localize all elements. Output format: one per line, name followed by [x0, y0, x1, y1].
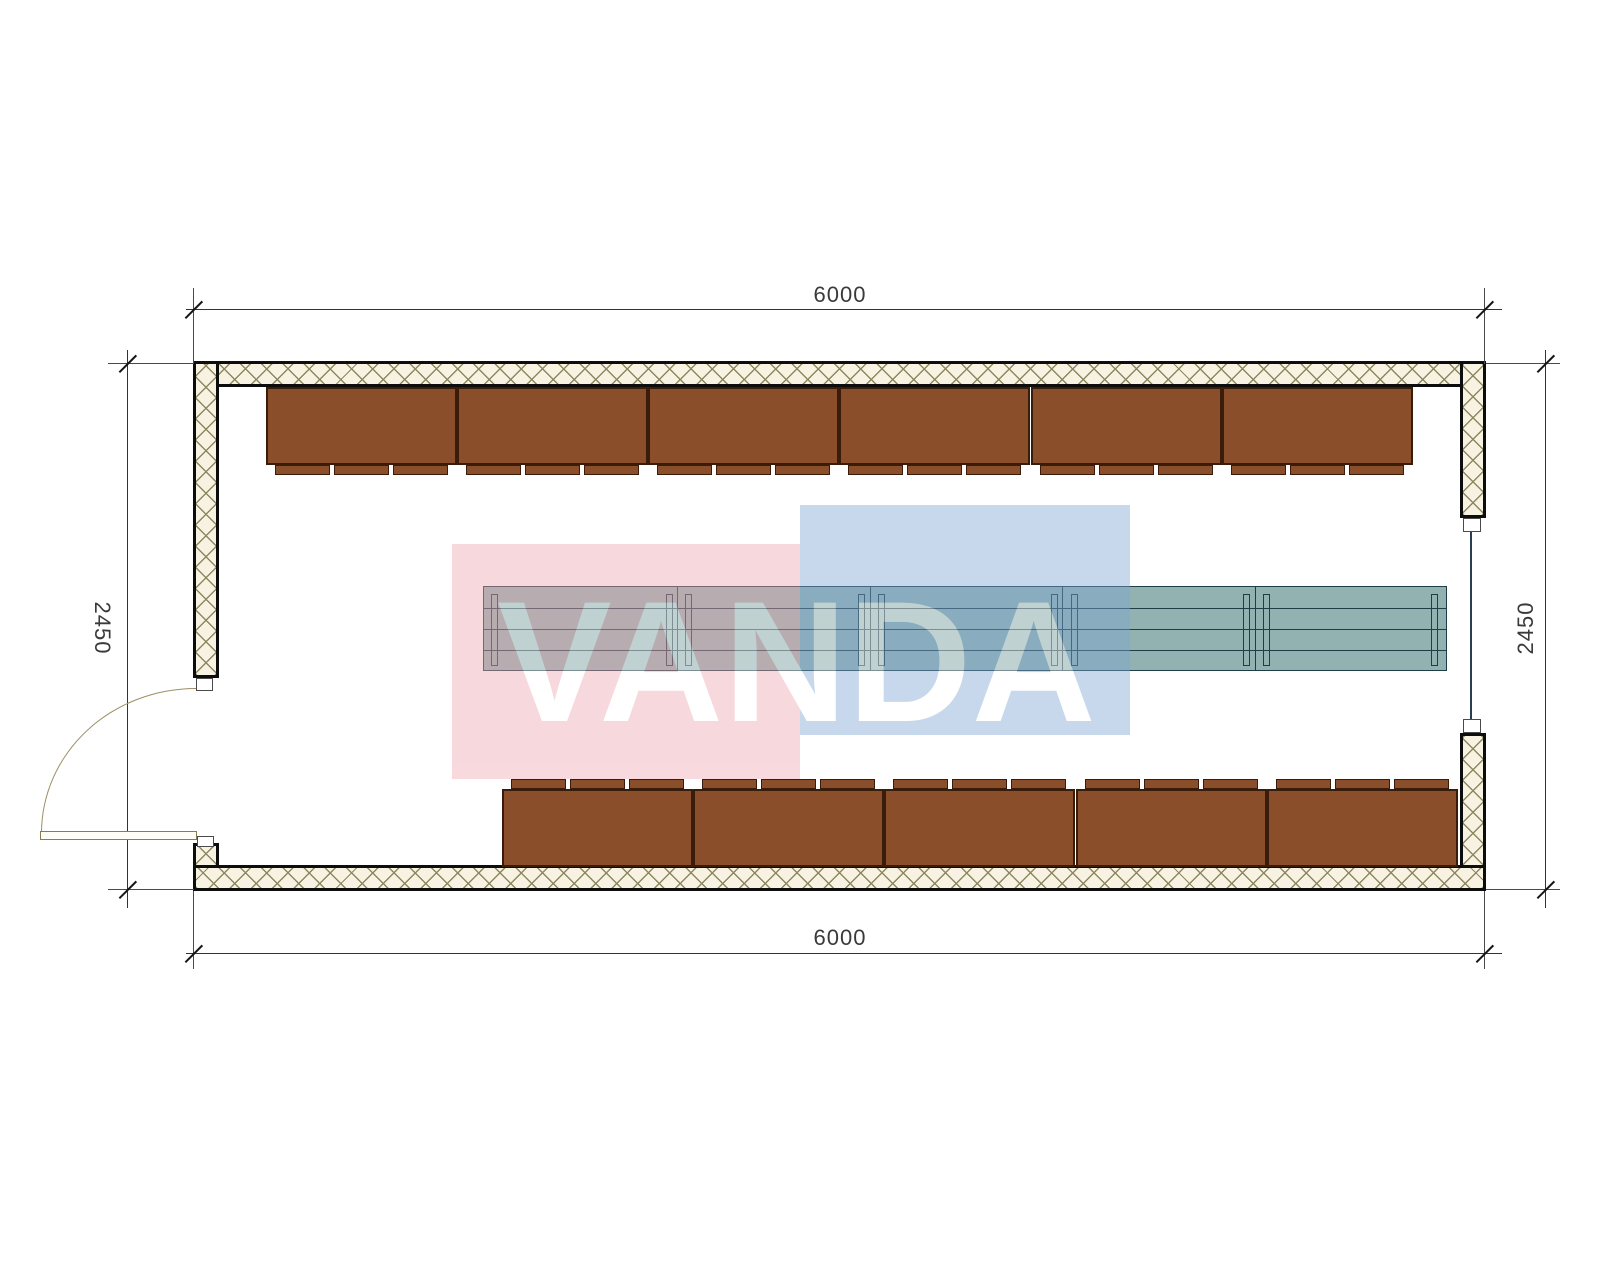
bench-tab	[1011, 779, 1066, 789]
table-plank-line	[484, 629, 1446, 630]
extension-line	[193, 288, 194, 364]
bench-tab	[761, 779, 816, 789]
table-leg	[685, 594, 692, 666]
bench-tab	[716, 465, 771, 475]
table-leg	[878, 594, 885, 666]
bench-tab	[1276, 779, 1331, 789]
table-segment-divider	[1255, 587, 1256, 670]
bench-tab	[275, 465, 330, 475]
table-plank-line	[484, 608, 1446, 609]
table-segment-divider	[677, 587, 678, 670]
bench-block	[1076, 789, 1267, 867]
extension-line	[1484, 288, 1485, 364]
bench-tab	[393, 465, 448, 475]
bench-tab	[893, 779, 948, 789]
window-jamb-top	[1463, 518, 1481, 532]
window-glass-line	[1470, 532, 1472, 719]
bench-tab	[848, 465, 903, 475]
table-leg	[1071, 594, 1078, 666]
table-segment-divider	[1062, 587, 1063, 670]
table-leg	[666, 594, 673, 666]
bench-tab	[1203, 779, 1258, 789]
table-leg	[1263, 594, 1270, 666]
bench-tab	[1144, 779, 1199, 789]
window-jamb-bottom	[1463, 719, 1481, 733]
bench-tab	[570, 779, 625, 789]
bench-tab	[820, 779, 875, 789]
bench-block	[502, 789, 693, 867]
bench-tab	[466, 465, 521, 475]
door-jamb-bottom	[197, 836, 214, 847]
table-leg	[858, 594, 865, 666]
table-leg	[1243, 594, 1250, 666]
dim-line-right	[1545, 350, 1546, 908]
bench-tab	[966, 465, 1021, 475]
bench-tab	[525, 465, 580, 475]
bench-tab	[1040, 465, 1095, 475]
table-leg	[1431, 594, 1438, 666]
door-leaf	[40, 831, 197, 840]
door-jamb-top	[196, 678, 213, 691]
bench-block	[1267, 789, 1458, 867]
bench-tab	[1231, 465, 1286, 475]
table-leg	[1051, 594, 1058, 666]
extension-line	[193, 891, 194, 969]
bench-tab	[907, 465, 962, 475]
bench-tab	[511, 779, 566, 789]
bench-block	[1222, 387, 1413, 465]
dim-label-right: 2450	[1514, 548, 1538, 708]
bench-tab	[334, 465, 389, 475]
bench-tab	[657, 465, 712, 475]
bench-tab	[584, 465, 639, 475]
dim-line-bottom	[186, 953, 1502, 954]
bench-tab	[702, 779, 757, 789]
extension-line	[108, 889, 194, 890]
bench-tab	[1335, 779, 1390, 789]
extension-line	[108, 363, 194, 364]
bench-tab	[952, 779, 1007, 789]
bench-tab	[1290, 465, 1345, 475]
table	[483, 586, 1447, 671]
bench-tab	[1349, 465, 1404, 475]
dim-label-top: 6000	[760, 283, 920, 307]
floor-plan-canvas: 6000 6000 2450 2450 VANDA	[0, 0, 1600, 1280]
bench-block	[693, 789, 884, 867]
dim-label-bottom: 6000	[760, 926, 920, 950]
bench-tab	[1394, 779, 1449, 789]
bench-block	[266, 387, 457, 465]
dim-label-left: 2450	[90, 548, 114, 708]
table-segment-divider	[870, 587, 871, 670]
extension-line	[1486, 363, 1560, 364]
table-plank-line	[484, 650, 1446, 651]
bench-block	[1031, 387, 1222, 465]
extension-line	[1486, 889, 1560, 890]
extension-line	[1484, 891, 1485, 969]
table-leg	[491, 594, 498, 666]
bench-block	[648, 387, 839, 465]
bench-tab	[1085, 779, 1140, 789]
bench-tab	[1158, 465, 1213, 475]
bench-block	[457, 387, 648, 465]
bench-tab	[775, 465, 830, 475]
bench-block	[884, 789, 1075, 867]
dim-line-top	[186, 309, 1502, 310]
bench-tab	[629, 779, 684, 789]
bench-tab	[1099, 465, 1154, 475]
bench-block	[839, 387, 1030, 465]
